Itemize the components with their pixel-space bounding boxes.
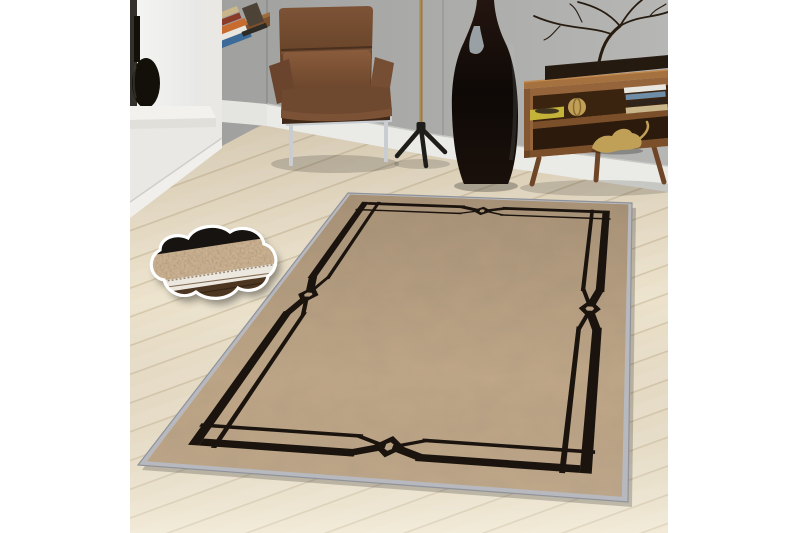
- tray-contents: [535, 108, 559, 114]
- scene-svg: [130, 0, 668, 533]
- window-ledge: [130, 106, 216, 120]
- page: [0, 0, 800, 533]
- wall-corner-line-right: [442, 0, 444, 150]
- chair-leg-right: [384, 120, 388, 162]
- apple-body: [568, 98, 586, 116]
- lamp-pole: [419, 0, 423, 126]
- lamp-shadow: [394, 159, 450, 169]
- vase-bulb: [132, 58, 160, 108]
- chair-leg-left: [289, 124, 293, 166]
- sideboard-left-edge: [524, 89, 530, 159]
- vase-neck: [134, 16, 140, 62]
- product-photo[interactable]: [130, 0, 668, 533]
- sideboard-leg: [596, 153, 598, 180]
- recess-baseboard: [222, 100, 267, 126]
